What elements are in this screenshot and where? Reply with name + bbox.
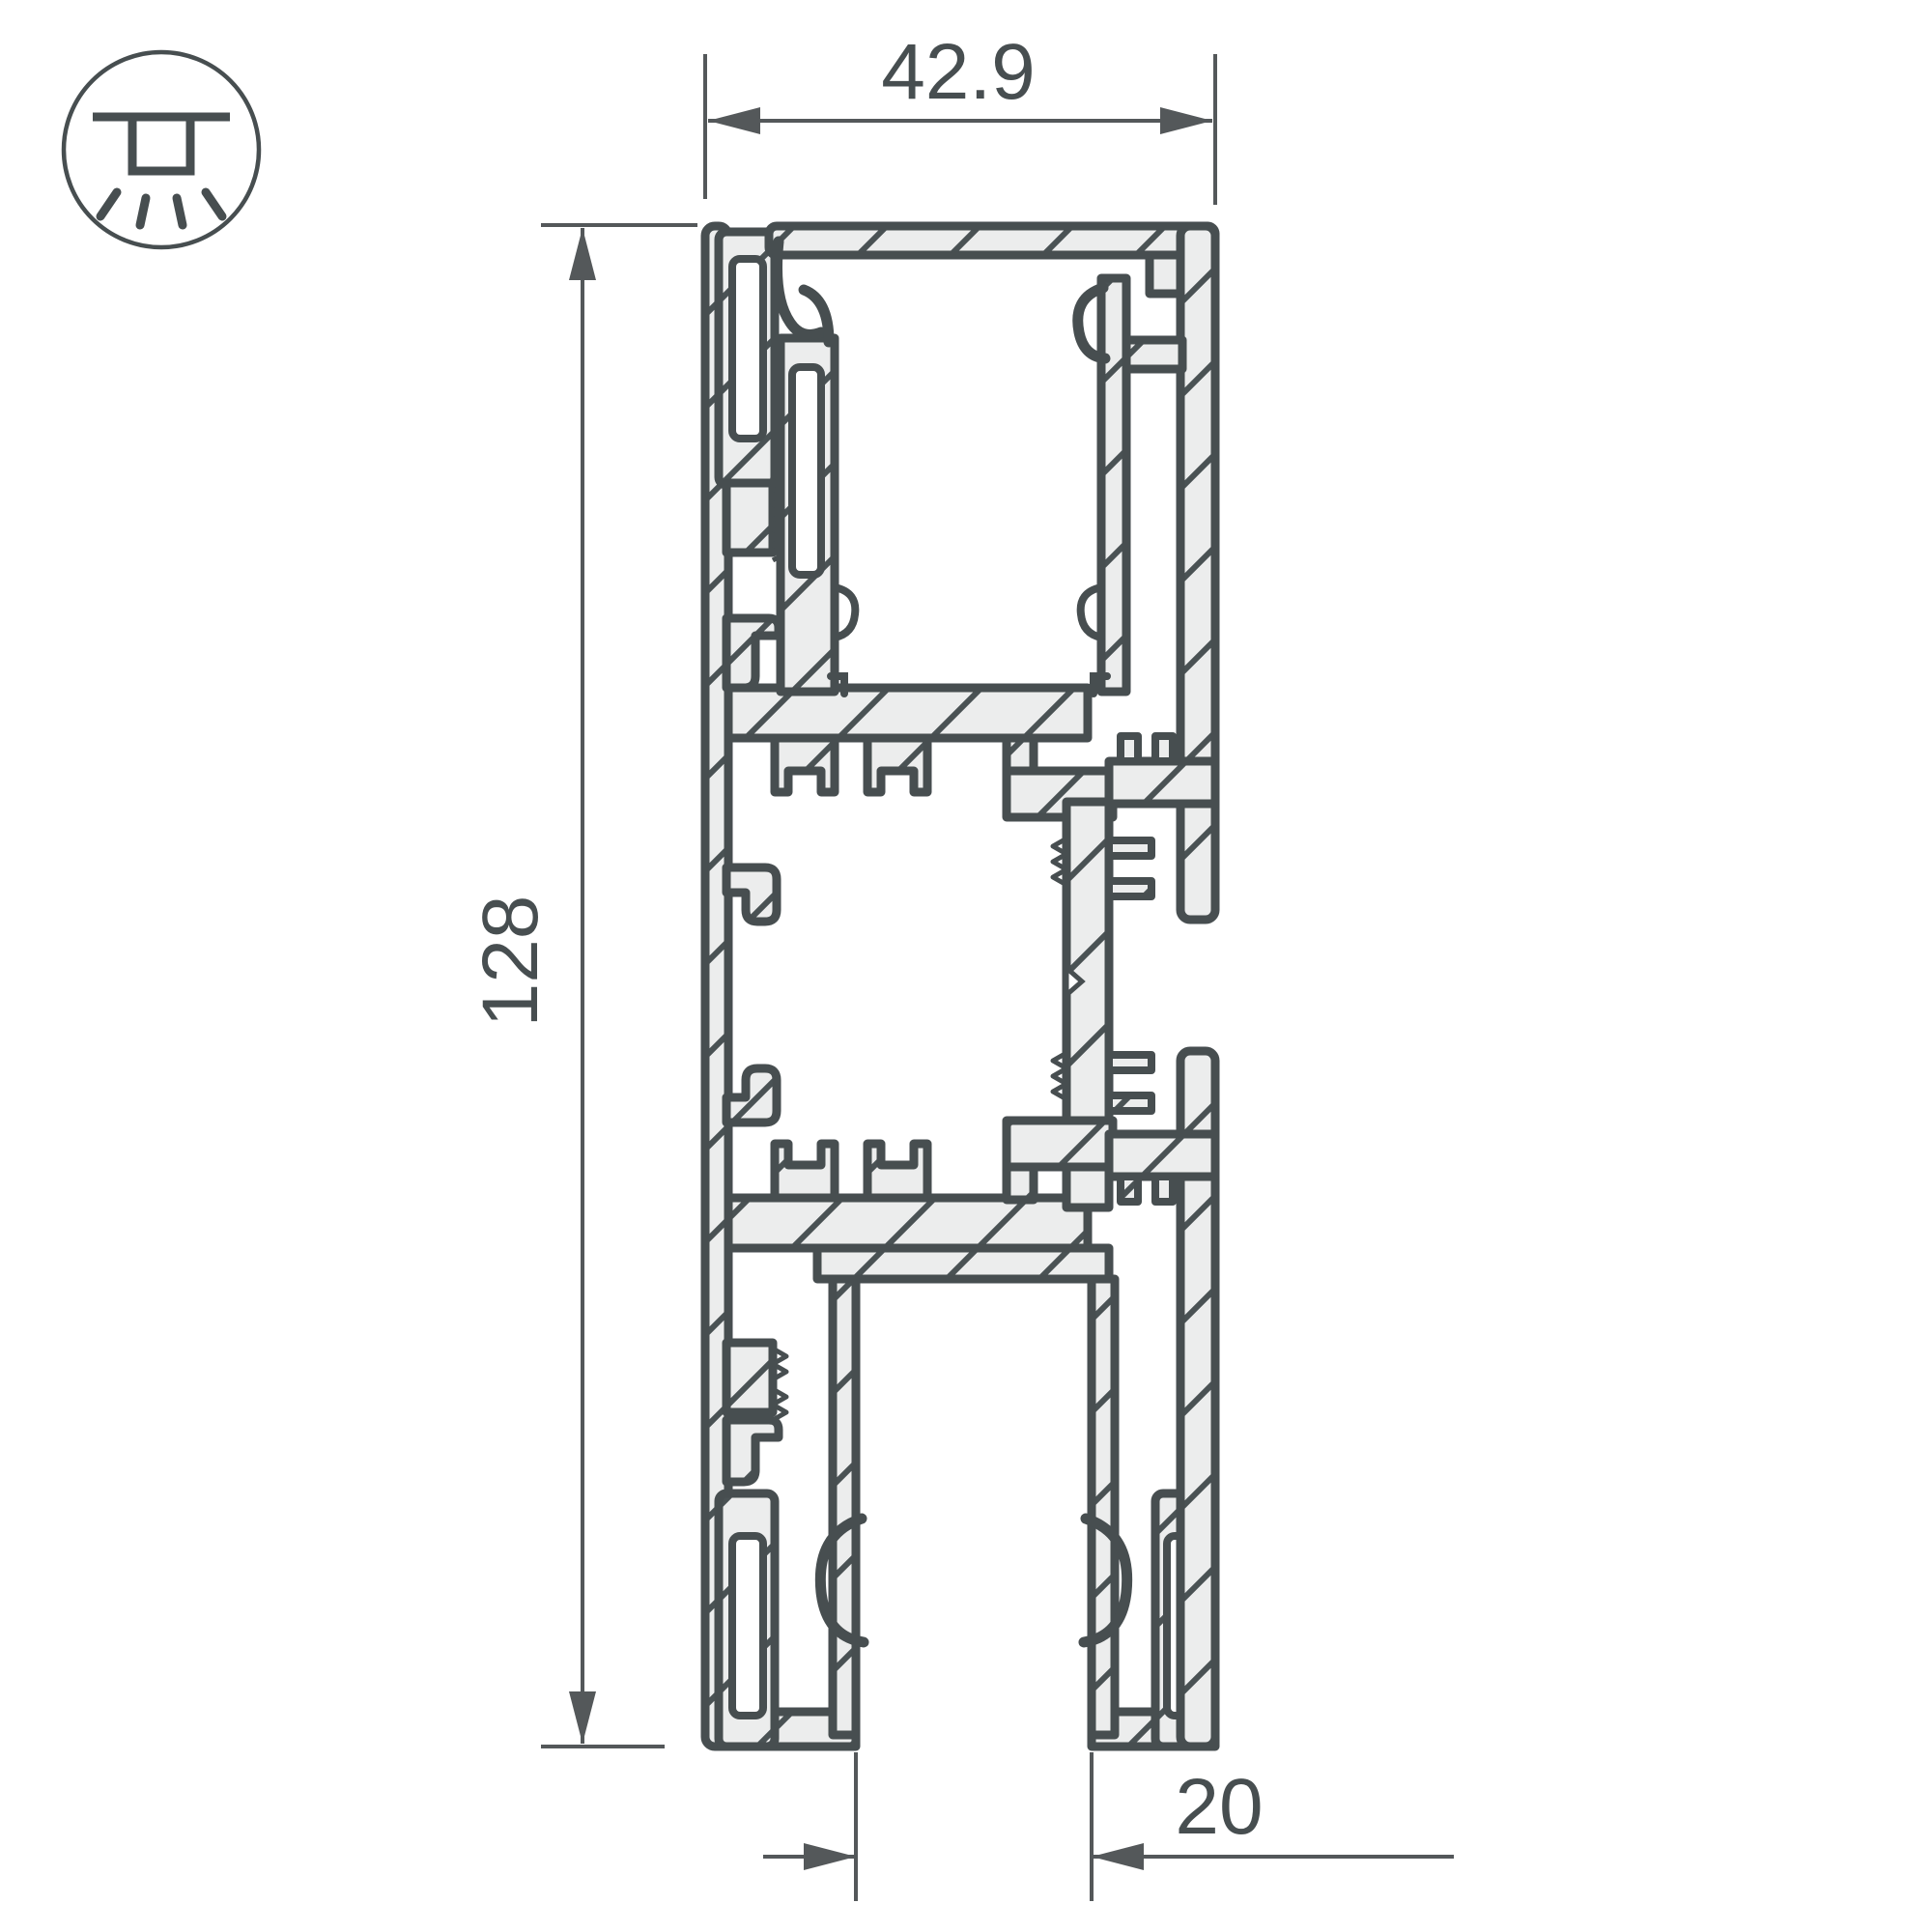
- dimension-value: 42.9: [881, 28, 1036, 116]
- arrowhead: [569, 1691, 596, 1744]
- t-slot-hook: [775, 738, 835, 792]
- dimension-height-left: 128: [467, 225, 697, 1747]
- arrowhead: [1160, 107, 1212, 134]
- mount-type-icon: [64, 52, 259, 247]
- right-wall-upper: [1180, 226, 1215, 920]
- dimension-width-top: 42.9: [705, 28, 1215, 205]
- top-lid-right-lip: [1150, 255, 1180, 294]
- t-slot-hook: [775, 1144, 835, 1198]
- right-joint-bridge: [1124, 340, 1182, 369]
- wall-tooth: [726, 618, 779, 688]
- lower-channel-lid: [817, 1248, 1109, 1279]
- joint-band-lower: [1109, 1134, 1215, 1177]
- dimension-opening-bottom: 20: [763, 1752, 1454, 1901]
- t-slot-hook: [867, 738, 927, 792]
- icon-circle: [64, 52, 259, 247]
- profile-cross-section: [705, 226, 1215, 1747]
- knuckle-prong: [1109, 881, 1151, 896]
- arrowhead: [1092, 1843, 1144, 1870]
- lower-channel-wall-left: [833, 1279, 856, 1735]
- dimension-value: 128: [467, 895, 554, 1028]
- wall-hook-down: [726, 867, 777, 922]
- t-slot-hook: [867, 1144, 927, 1198]
- joint-prong: [1121, 1177, 1138, 1202]
- bottom-cap-left-slot: [732, 1536, 763, 1716]
- knuckle-prong: [1109, 1095, 1151, 1111]
- upper-channel-wall-left-slot: [792, 367, 821, 575]
- arrowhead: [804, 1843, 856, 1870]
- light-rays-icon: [100, 192, 222, 225]
- wall-hook-up: [726, 1068, 777, 1122]
- top-lid: [769, 226, 1215, 255]
- knuckle-prong: [1109, 840, 1151, 856]
- top-cap-slot: [732, 259, 763, 439]
- arrowhead: [708, 107, 760, 134]
- serrated-shelf-upper: [726, 483, 773, 553]
- arrowhead: [569, 228, 596, 280]
- joint-prong: [1155, 1177, 1173, 1202]
- technical-drawing-page: 42.9 128 20: [0, 0, 1932, 1932]
- lower-channel-wall-right: [1092, 1279, 1115, 1735]
- joint-band-upper: [1109, 761, 1215, 804]
- dimension-value: 20: [1175, 1763, 1263, 1851]
- serrated-shelf-lower: [726, 1343, 773, 1412]
- web-step-band: [1007, 1121, 1113, 1167]
- knuckle-prong: [1109, 1055, 1151, 1070]
- fixture-box: [132, 117, 190, 171]
- joint-prong: [1155, 736, 1173, 761]
- wall-tooth: [726, 1420, 779, 1482]
- joint-prong: [1121, 736, 1138, 761]
- technical-drawing-canvas: 42.9 128 20: [0, 0, 1932, 1932]
- upper-channel-wall-right: [1101, 278, 1126, 692]
- lower-web: [728, 1198, 1088, 1248]
